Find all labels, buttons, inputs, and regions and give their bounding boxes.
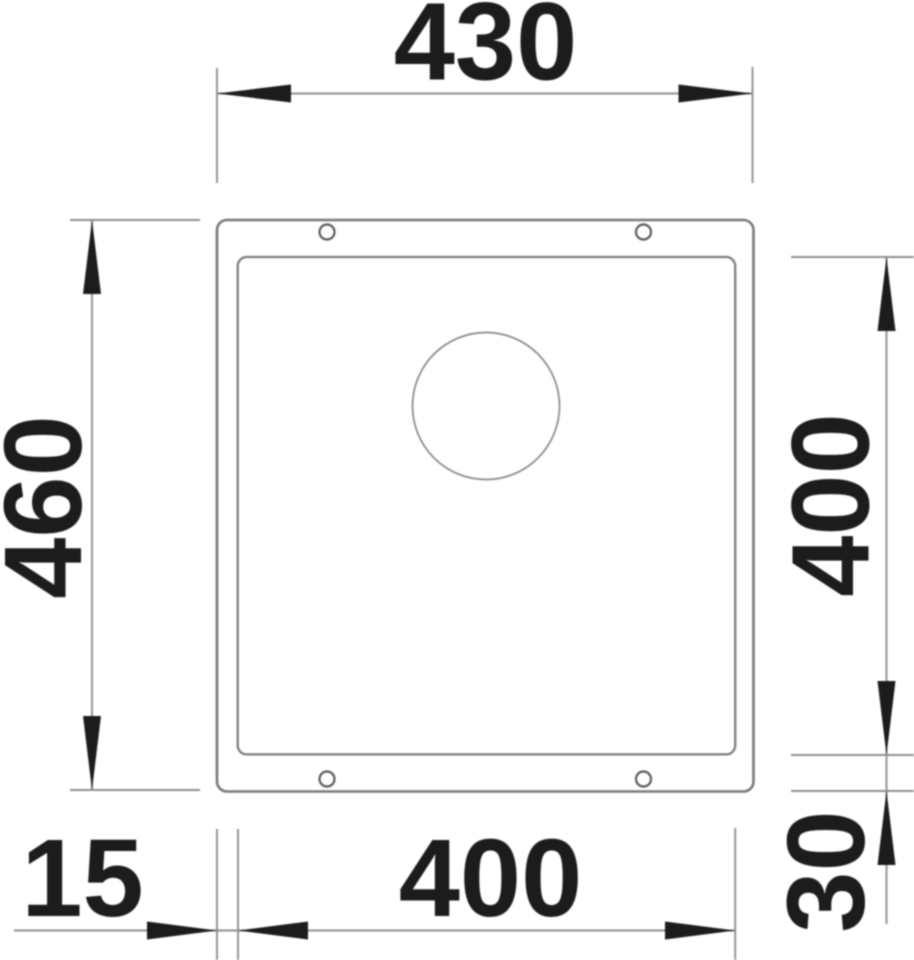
svg-text:15: 15	[21, 817, 143, 940]
svg-text:400: 400	[770, 413, 893, 597]
svg-text:430: 430	[394, 0, 578, 104]
svg-text:400: 400	[399, 817, 583, 940]
svg-text:460: 460	[0, 415, 105, 599]
svg-text:30: 30	[765, 810, 888, 932]
